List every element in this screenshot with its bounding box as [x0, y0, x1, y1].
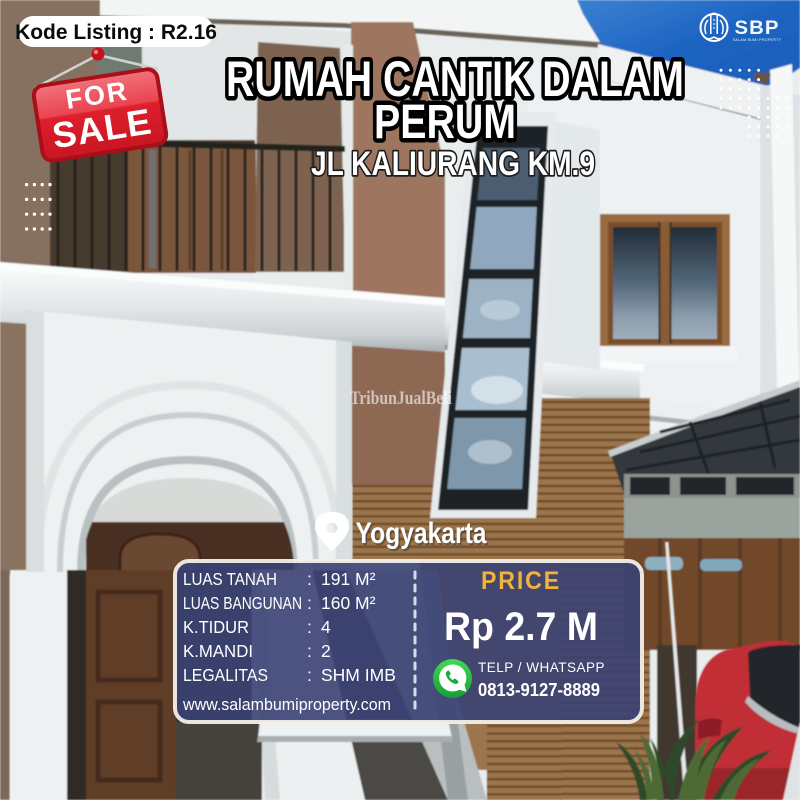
svg-text:SBP: SBP: [735, 18, 780, 39]
svg-text:JL KALIURANG KM.9: JL KALIURANG KM.9: [311, 145, 595, 183]
svg-text:4: 4: [321, 617, 331, 637]
svg-text:2: 2: [321, 641, 331, 661]
svg-text:0813-9127-8889: 0813-9127-8889: [478, 679, 600, 700]
svg-text:PERUM: PERUM: [374, 96, 516, 149]
svg-text:Kode Listing : R2.16: Kode Listing : R2.16: [15, 21, 217, 44]
svg-text:SHM IMB: SHM IMB: [321, 665, 396, 685]
svg-text:160 M²: 160 M²: [321, 593, 376, 613]
svg-text:SALAM BUMI PROPERTY: SALAM BUMI PROPERTY: [733, 38, 782, 42]
svg-text::: :: [307, 569, 312, 589]
svg-text:LUAS BANGUNAN: LUAS BANGUNAN: [183, 593, 302, 613]
svg-text:Yogyakarta: Yogyakarta: [356, 517, 487, 550]
svg-text::: :: [307, 665, 312, 685]
svg-text:LEGALITAS: LEGALITAS: [183, 665, 268, 685]
svg-text::: :: [307, 617, 312, 637]
svg-text:LUAS TANAH: LUAS TANAH: [183, 569, 277, 589]
svg-text:www.salambumiproperty.com: www.salambumiproperty.com: [182, 696, 391, 714]
svg-text:TELP / WHATSAPP: TELP / WHATSAPP: [478, 660, 605, 675]
svg-text::: :: [307, 593, 312, 613]
svg-text::: :: [307, 641, 312, 661]
svg-text:K.TIDUR: K.TIDUR: [183, 617, 249, 637]
svg-text:191 M²: 191 M²: [321, 569, 376, 589]
svg-text:K.MANDI: K.MANDI: [183, 641, 253, 661]
svg-text:TribunJualBeli: TribunJualBeli: [350, 388, 452, 409]
svg-text:Rp 2.7 M: Rp 2.7 M: [444, 605, 598, 649]
svg-text:PRICE: PRICE: [481, 567, 561, 595]
